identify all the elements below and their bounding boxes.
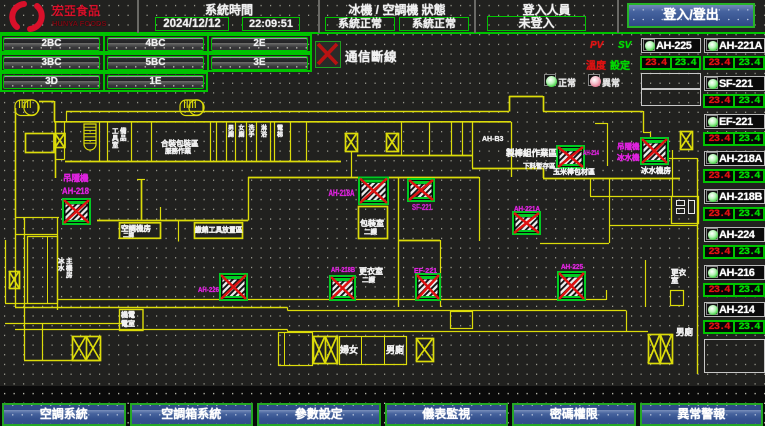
svg-text:AH-218: AH-218 [62, 186, 89, 196]
svg-text:工: 工 [112, 127, 119, 135]
svg-text:AH-214: AH-214 [583, 150, 599, 157]
svg-text:婦女: 婦女 [339, 344, 358, 355]
svg-text:手: 手 [249, 131, 255, 139]
svg-text:玉米棒包材區: 玉米棒包材區 [553, 167, 595, 176]
svg-text:機電: 機電 [121, 310, 135, 319]
svg-text:電室: 電室 [121, 319, 135, 328]
svg-text:合裝包裝區: 合裝包裝區 [161, 138, 199, 148]
svg-text:冰: 冰 [58, 256, 65, 265]
svg-text:具: 具 [112, 133, 119, 142]
svg-text:廁: 廁 [239, 131, 245, 139]
svg-text:下料暫存區: 下料暫存區 [523, 161, 556, 170]
svg-text:淋: 淋 [261, 124, 267, 132]
svg-text:男廁: 男廁 [386, 344, 404, 355]
svg-text:AH-B3: AH-B3 [482, 136, 503, 143]
svg-text:服務作業: 服務作業 [165, 146, 192, 155]
svg-text:AH-225: AH-225 [561, 262, 583, 271]
svg-text:AH-226: AH-226 [198, 285, 219, 294]
svg-text:機: 機 [66, 263, 73, 272]
svg-text:吊隱機: 吊隱機 [617, 141, 640, 151]
svg-text:電: 電 [277, 124, 283, 132]
svg-text:二課: 二課 [123, 231, 135, 239]
svg-text:AH-221A: AH-221A [514, 204, 540, 213]
svg-text:宏亞食品: 宏亞食品 [52, 3, 100, 18]
svg-text:房: 房 [66, 270, 73, 279]
svg-text:繳銷工具放置區: 繳銷工具放置區 [195, 225, 243, 234]
svg-text:品: 品 [120, 133, 127, 142]
svg-text:空調機房: 空調機房 [121, 223, 151, 233]
svg-text:冰水機: 冰水機 [617, 152, 640, 162]
svg-text:室: 室 [112, 140, 119, 149]
svg-text:更衣室: 更衣室 [359, 266, 383, 276]
svg-text:梯: 梯 [277, 131, 283, 139]
svg-text:二課: 二課 [362, 275, 376, 284]
svg-text:SF-221: SF-221 [412, 203, 432, 212]
svg-text:包裝室: 包裝室 [359, 218, 384, 228]
svg-text:水: 水 [58, 263, 65, 272]
svg-text:EF-221: EF-221 [414, 266, 437, 275]
svg-text:HUNYA FOODS: HUNYA FOODS [52, 19, 106, 28]
svg-text:吊隱機: 吊隱機 [63, 173, 89, 183]
svg-text:廁: 廁 [228, 131, 234, 139]
svg-text:二課: 二課 [364, 227, 378, 236]
svg-text:男廁: 男廁 [676, 327, 694, 337]
svg-text:浴: 浴 [261, 131, 268, 139]
svg-text:AH-218A: AH-218A [329, 188, 355, 198]
svg-text:室: 室 [671, 275, 679, 285]
svg-text:主: 主 [66, 256, 73, 265]
svg-text:備: 備 [120, 126, 127, 135]
svg-text:製棒組作業區: 製棒組作業區 [505, 148, 558, 158]
svg-text:女: 女 [239, 124, 245, 132]
svg-text:冰水機房: 冰水機房 [641, 165, 671, 175]
svg-text:男: 男 [228, 124, 234, 132]
svg-text:洗: 洗 [249, 124, 255, 132]
svg-text:AH-218B: AH-218B [331, 265, 355, 274]
